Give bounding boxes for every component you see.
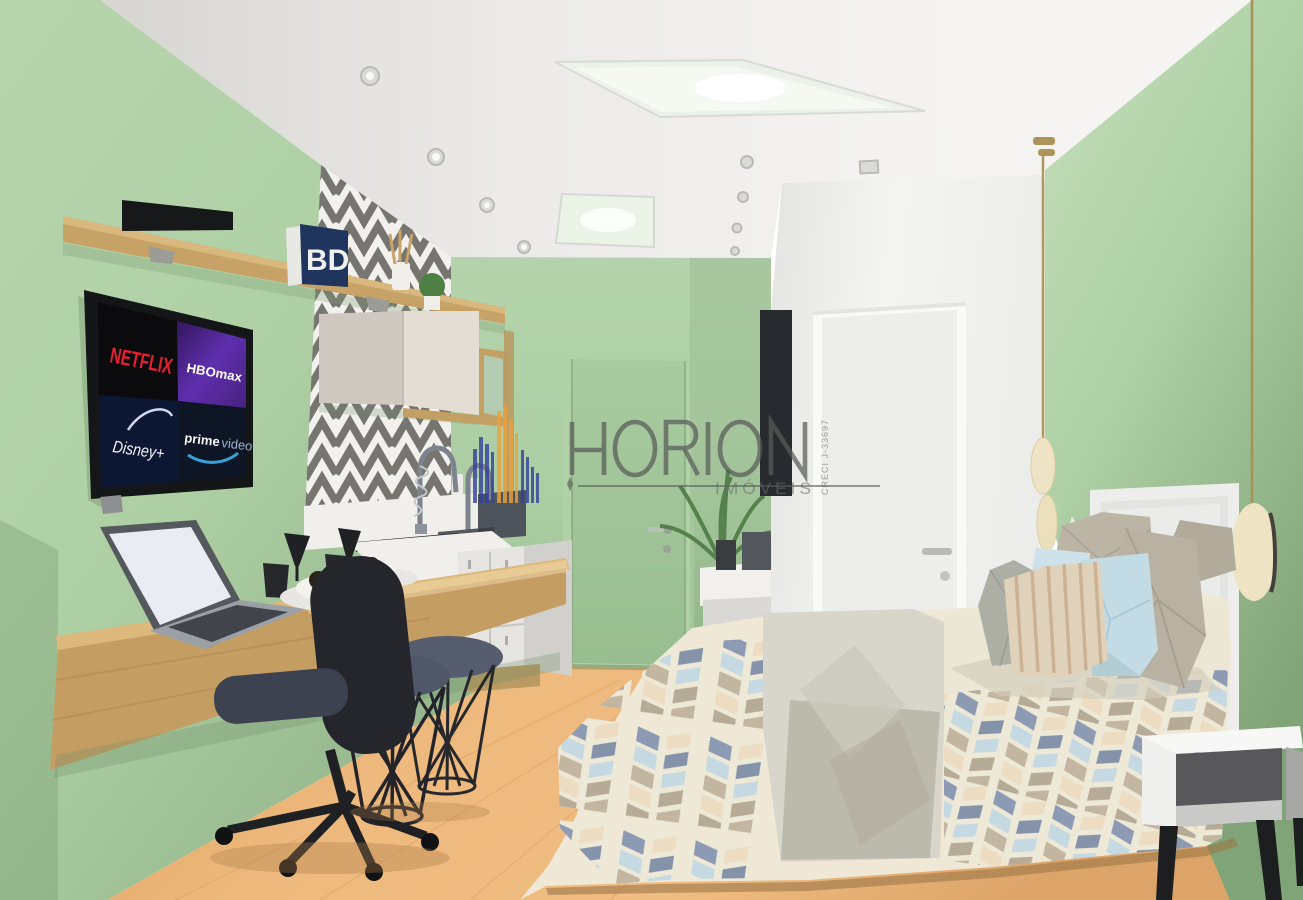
svg-text:IMÓVEIS: IMÓVEIS — [715, 479, 815, 498]
svg-text:BD: BD — [306, 244, 349, 277]
svg-text:CRECI J-33697: CRECI J-33697 — [820, 419, 830, 495]
